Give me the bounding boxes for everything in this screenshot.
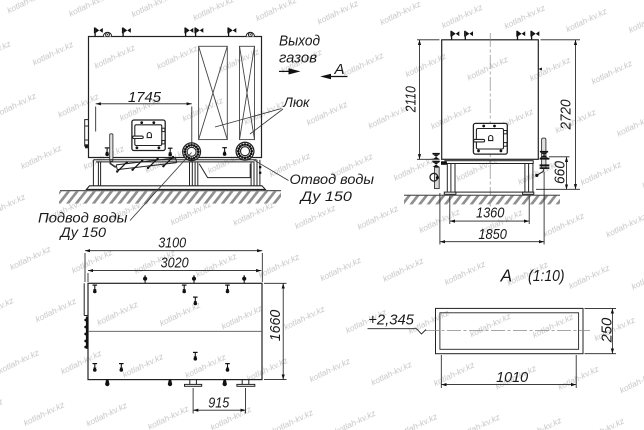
svg-text:Подвод воды: Подвод воды — [38, 209, 128, 225]
svg-text:250: 250 — [599, 317, 616, 343]
svg-text:660: 660 — [552, 160, 569, 184]
svg-text:1360: 1360 — [476, 204, 505, 221]
svg-text:2720: 2720 — [557, 99, 574, 130]
svg-text:Ду 150: Ду 150 — [298, 188, 352, 204]
svg-text:3020: 3020 — [161, 256, 189, 272]
svg-text:3100: 3100 — [158, 236, 186, 252]
svg-text:(1:10): (1:10) — [528, 268, 565, 285]
svg-text:1745: 1745 — [128, 89, 162, 106]
svg-text:А: А — [500, 266, 512, 286]
svg-text:1010: 1010 — [496, 369, 529, 386]
svg-text:газов: газов — [279, 51, 317, 67]
svg-text:2110: 2110 — [403, 86, 420, 113]
svg-text:Люк: Люк — [283, 94, 311, 110]
svg-text:+2,345: +2,345 — [368, 312, 415, 328]
svg-text:А: А — [333, 62, 344, 78]
svg-text:Выход: Выход — [279, 33, 320, 49]
svg-text:1660: 1660 — [268, 310, 284, 342]
svg-text:Ду 150: Ду 150 — [58, 224, 106, 240]
svg-text:1850: 1850 — [478, 226, 507, 243]
svg-text:Отвод воды: Отвод воды — [290, 171, 375, 187]
svg-text:915: 915 — [208, 395, 230, 412]
